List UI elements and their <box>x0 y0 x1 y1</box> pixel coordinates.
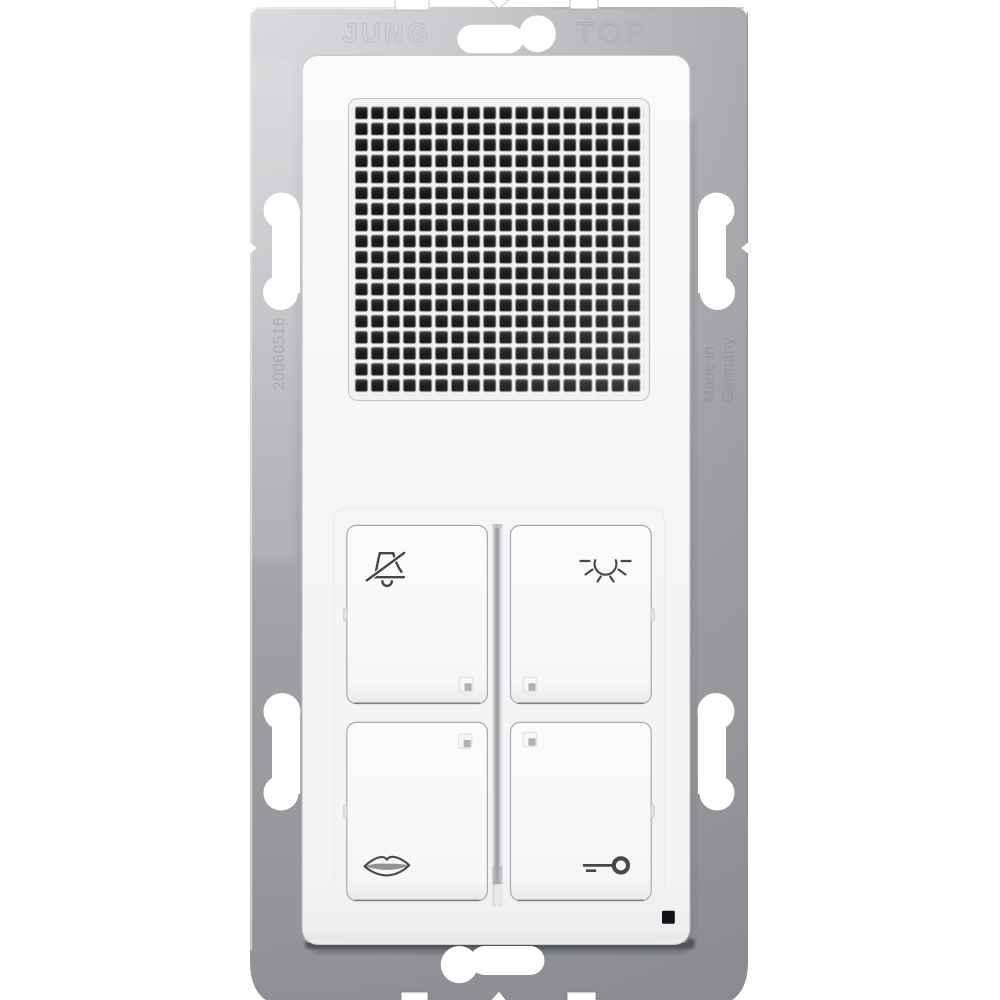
svg-text:TOP: TOP <box>576 17 649 50</box>
svg-text:20060516: 20060516 <box>271 317 288 390</box>
svg-text:Germany: Germany <box>720 337 737 403</box>
svg-text:Made in: Made in <box>701 346 718 403</box>
svg-text:JUNG: JUNG <box>342 18 431 48</box>
